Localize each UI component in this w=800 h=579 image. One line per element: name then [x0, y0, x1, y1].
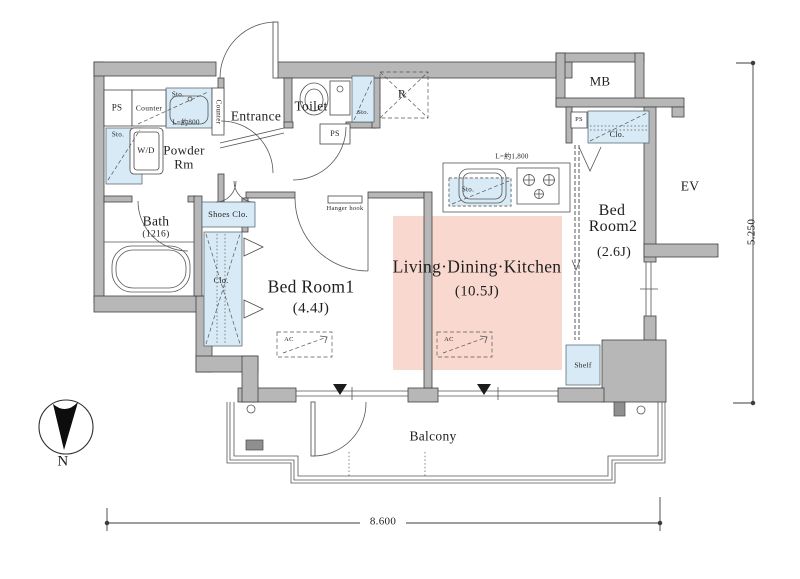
label-ps-topleft: PS	[112, 104, 123, 113]
window-marker	[477, 384, 491, 395]
label-ac-bedroom1: AC	[284, 337, 294, 344]
bathtub	[104, 242, 194, 292]
balcony-door-leaf	[311, 402, 315, 456]
label-meter-box: MB	[590, 75, 611, 88]
balcony-drain	[637, 406, 645, 414]
label-sto-kitchen: Sto.	[462, 187, 474, 194]
label-dimension-height: 5.250	[747, 219, 758, 245]
label-ac-ldk: AC	[444, 337, 454, 344]
label-bedroom2-1: Bed	[599, 203, 626, 219]
stove-burners	[523, 174, 555, 199]
label-ps-right: PS	[575, 117, 583, 124]
label-balcony: Balcony	[409, 429, 456, 443]
shoes-closet-door-arc	[234, 181, 254, 202]
label-entrance: Entrance	[231, 109, 281, 123]
label-bedroom2-size: (2.6J)	[597, 246, 631, 260]
label-elevator: EV	[681, 179, 700, 193]
floor-plan: PS Counter Sto. L=約800 Sto. W/D Powder R…	[0, 0, 800, 579]
label-ldk: Living·Dining·Kitchen	[393, 258, 562, 276]
label-sto-toilet: Sto.	[357, 110, 369, 117]
entrance-door-arc	[220, 22, 276, 78]
label-counter-length: L=約800	[172, 120, 200, 127]
label-bath-size: (1216)	[142, 230, 169, 240]
label-clo-bedroom2: Clo.	[610, 131, 625, 139]
window-marker	[333, 384, 347, 395]
label-refrigerator: R	[398, 89, 406, 101]
floorplan-drawing	[0, 0, 800, 579]
label-bedroom1-size: (4.4J)	[293, 302, 329, 317]
label-counter-vertical: Counter	[215, 100, 222, 125]
label-sto-powder: Sto.	[172, 92, 184, 99]
label-north: N	[57, 455, 68, 470]
label-shoes-closet: Shoes Clo.	[208, 210, 248, 219]
balcony-drain	[247, 405, 255, 413]
label-counter: Counter	[136, 104, 162, 112]
label-powder-room-1: Powder	[163, 144, 205, 157]
bedroom2-partition	[572, 145, 601, 340]
powder-door-arc	[221, 121, 273, 173]
bedroom1-closet	[204, 232, 242, 346]
label-sto-wd: Sto.	[112, 132, 124, 139]
label-ps-toilet: PS	[330, 130, 340, 138]
closet-door-marker	[244, 238, 263, 256]
north-compass	[39, 400, 93, 454]
label-clo-bedroom1: Clo.	[214, 277, 229, 285]
label-dimension-width: 8.600	[370, 517, 396, 528]
label-shelf: Shelf	[574, 361, 591, 369]
entrance-door-leaf	[273, 22, 278, 78]
label-bath: Bath	[143, 214, 170, 228]
label-bedroom2-2: Room2	[589, 219, 638, 235]
label-powder-room-2: Rm	[174, 158, 193, 171]
hanger-hook-rail	[328, 196, 362, 203]
label-kitchen-length: L=約1,800	[495, 154, 528, 161]
partition-fold-mark	[579, 147, 601, 171]
label-washer-dryer: W/D	[137, 146, 154, 155]
balcony-door-arc	[313, 402, 366, 456]
label-toilet: Toilet	[294, 99, 327, 113]
label-ldk-size: (10.5J)	[455, 285, 499, 300]
label-bedroom1: Bed Room1	[268, 278, 355, 296]
closet-door-marker	[244, 300, 263, 318]
label-hanger-hook: Hanger hook	[326, 206, 363, 213]
